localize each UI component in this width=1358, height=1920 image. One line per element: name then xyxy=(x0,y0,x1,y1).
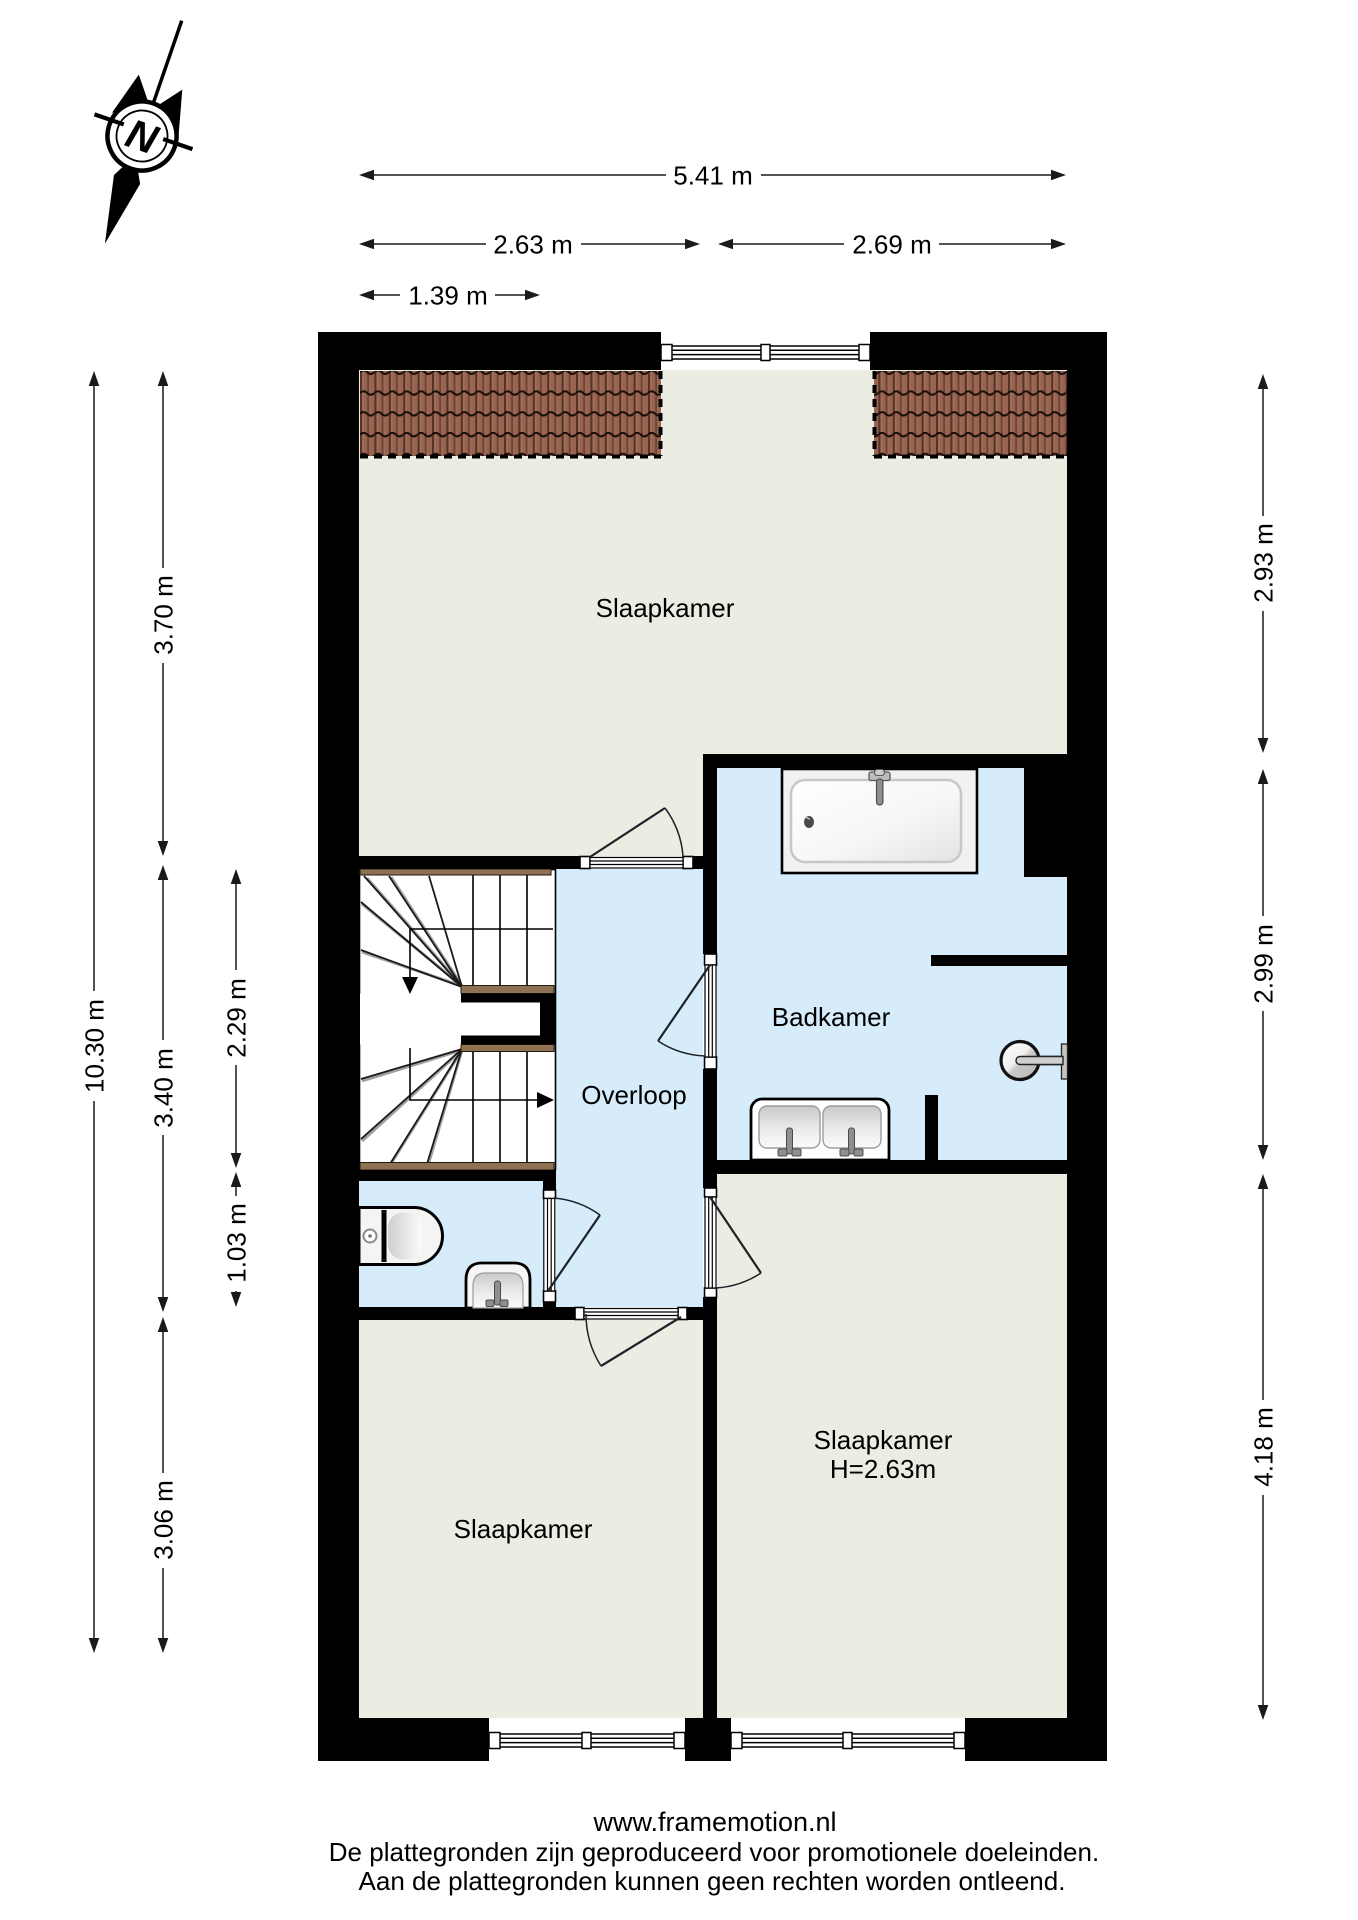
svg-text:2.93 m: 2.93 m xyxy=(1249,523,1279,603)
svg-text:Slaapkamer: Slaapkamer xyxy=(814,1425,953,1455)
svg-text:2.63 m: 2.63 m xyxy=(493,230,573,260)
svg-text:Slaapkamer: Slaapkamer xyxy=(454,1514,593,1544)
svg-text:10.30 m: 10.30 m xyxy=(80,999,110,1093)
svg-text:3.06 m: 3.06 m xyxy=(149,1480,179,1560)
svg-text:4.18 m: 4.18 m xyxy=(1249,1407,1279,1487)
svg-text:www.framemotion.nl: www.framemotion.nl xyxy=(592,1807,836,1837)
svg-text:Overloop: Overloop xyxy=(581,1080,687,1110)
svg-text:2.69 m: 2.69 m xyxy=(852,230,932,260)
svg-text:1.03 m: 1.03 m xyxy=(222,1203,252,1283)
svg-text:Slaapkamer: Slaapkamer xyxy=(596,593,735,623)
svg-text:2.29 m: 2.29 m xyxy=(222,978,252,1058)
svg-text:Aan de plattegronden kunnen ge: Aan de plattegronden kunnen geen rechten… xyxy=(359,1866,1066,1896)
svg-text:3.40 m: 3.40 m xyxy=(149,1048,179,1128)
svg-text:5.41 m: 5.41 m xyxy=(673,161,753,191)
svg-text:1.39 m: 1.39 m xyxy=(408,281,488,311)
svg-text:Badkamer: Badkamer xyxy=(772,1002,891,1032)
svg-text:H=2.63m: H=2.63m xyxy=(830,1454,936,1484)
svg-text:3.70 m: 3.70 m xyxy=(149,575,179,655)
svg-text:2.99 m: 2.99 m xyxy=(1249,924,1279,1004)
svg-text:De plattegronden zijn geproduc: De plattegronden zijn geproduceerd voor … xyxy=(329,1837,1099,1867)
